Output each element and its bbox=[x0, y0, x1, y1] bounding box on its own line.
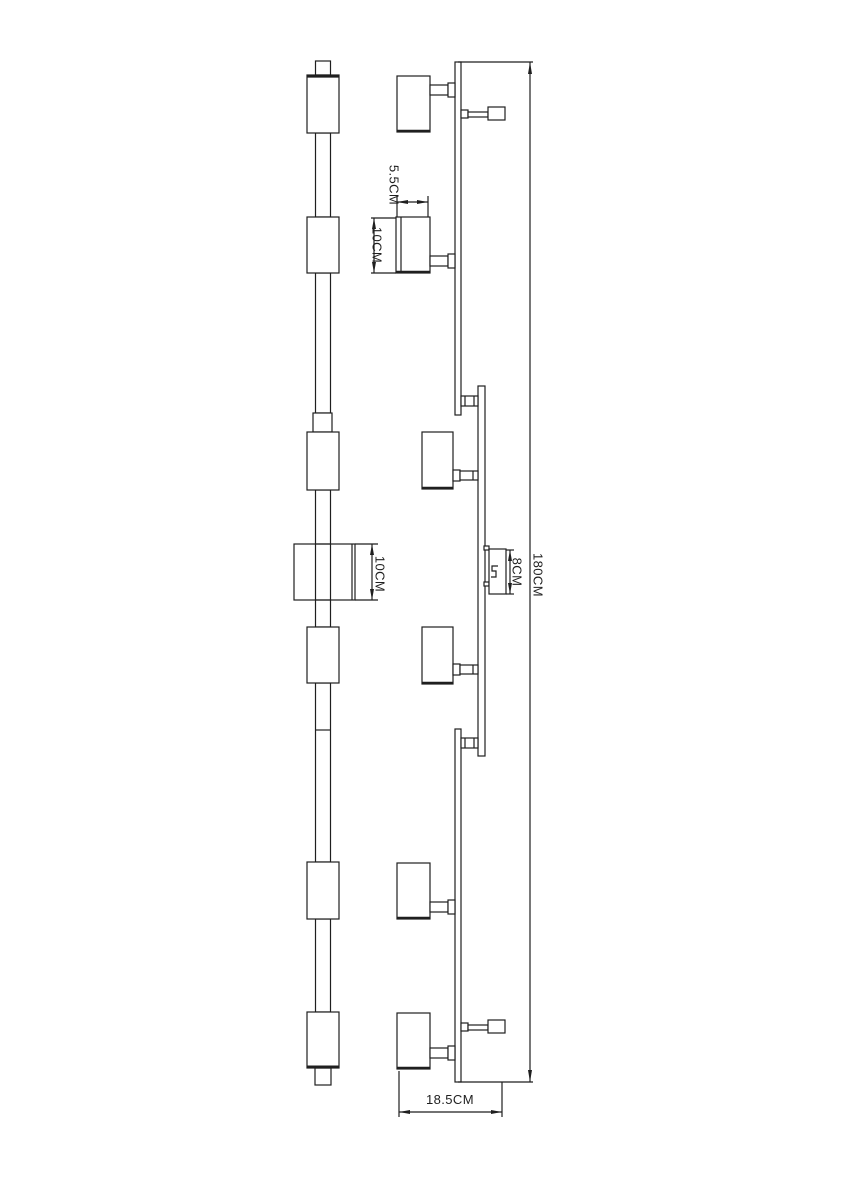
lamp-head bbox=[307, 217, 339, 273]
wall-bracket-height-label: 8CM bbox=[510, 558, 525, 587]
rail-joint-lower bbox=[461, 738, 478, 748]
lamp-head bbox=[307, 1012, 339, 1068]
head-depth-label: 5.5CM bbox=[387, 165, 402, 205]
overall-height-label: 180CM bbox=[531, 553, 546, 597]
pole-bottom-cap bbox=[315, 1068, 331, 1085]
rail-top bbox=[455, 62, 461, 415]
rail-joint-upper bbox=[461, 396, 478, 406]
lamp-head bbox=[307, 432, 339, 490]
dimension-head-depth-5p5cm: 5.5CM bbox=[387, 165, 429, 217]
head-height-label: 10CM bbox=[370, 227, 385, 263]
side-view-lamp-heads bbox=[307, 75, 340, 1068]
head-pivot-arm bbox=[460, 471, 478, 480]
head-pivot-arm bbox=[430, 902, 448, 912]
rail-middle bbox=[478, 386, 485, 756]
pole-top-cap bbox=[316, 61, 331, 75]
side-view-bracket-unit bbox=[294, 544, 355, 600]
front-lamp-head-3 bbox=[422, 432, 479, 489]
side-bracket-height-label: 10CM bbox=[373, 556, 388, 592]
lamp-head bbox=[307, 75, 339, 133]
dimension-bracket-8cm: 8CM bbox=[506, 550, 525, 594]
front-lamp-head-4 bbox=[422, 627, 479, 684]
dimension-head-height-10cm: 10CM bbox=[370, 218, 397, 273]
front-lamp-head-1 bbox=[397, 76, 456, 132]
front-lamp-head-5 bbox=[397, 863, 456, 919]
head-pivot-arm bbox=[430, 1048, 448, 1058]
lamp-head bbox=[307, 627, 339, 683]
adjuster-knob-top bbox=[461, 107, 505, 120]
knob bbox=[488, 1020, 505, 1033]
dimension-side-10cm: 10CM bbox=[355, 544, 388, 600]
overall-depth-label: 18.5CM bbox=[426, 1092, 474, 1107]
front-lamp-head-6 bbox=[397, 1013, 456, 1069]
side-view: 10CM bbox=[294, 61, 388, 1085]
wall-mount-bracket bbox=[484, 546, 506, 594]
head-pivot-arm bbox=[430, 256, 448, 266]
adjuster-knob-bottom bbox=[461, 1020, 505, 1033]
front-lamp-head-2 bbox=[396, 217, 456, 273]
head-pivot-arm bbox=[430, 85, 448, 95]
head-pivot-arm bbox=[460, 665, 478, 674]
technical-drawing-canvas: 10CM bbox=[0, 0, 848, 1200]
lamp-head bbox=[307, 862, 339, 919]
front-view: 5.5CM 10CM bbox=[370, 62, 546, 1117]
dimension-overall-depth-18p5cm: 18.5CM bbox=[399, 1071, 502, 1117]
pole-sleeve-joint bbox=[313, 413, 332, 432]
rail-bottom bbox=[455, 729, 461, 1082]
knob bbox=[488, 107, 505, 120]
